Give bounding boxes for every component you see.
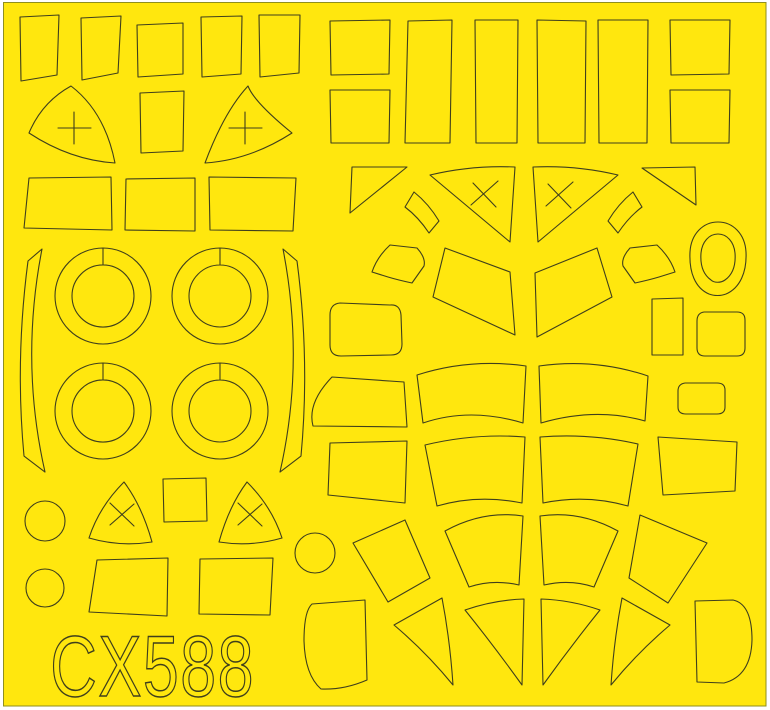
- mask-sheet-scan: CX588: [0, 0, 770, 710]
- mask-sheet-svg: CX588: [0, 0, 770, 710]
- sheet-code: CX588: [50, 619, 255, 710]
